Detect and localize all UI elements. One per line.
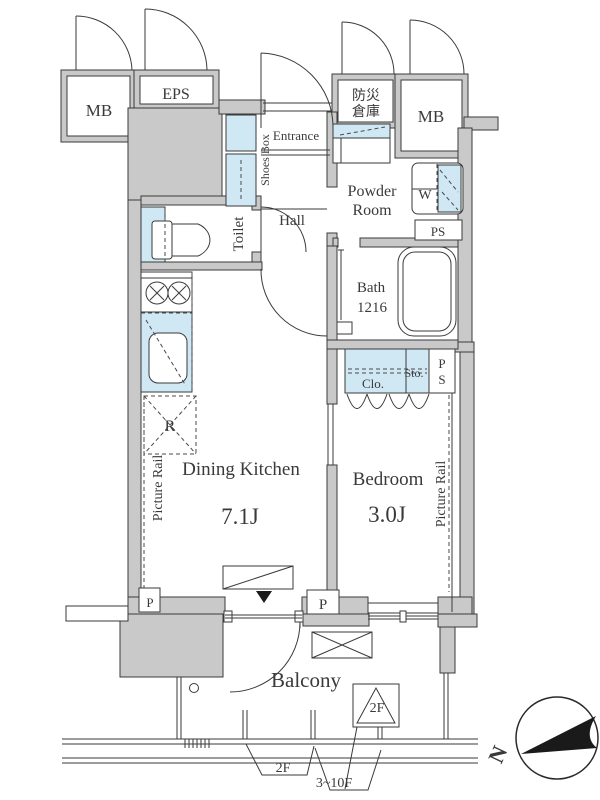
ps-side-label-line2: S: [438, 372, 445, 387]
balcony-and-windows: [62, 566, 478, 790]
kitchen-sink: [149, 333, 187, 383]
entrance-label: Entrance: [273, 128, 319, 143]
bath-counter: [337, 322, 352, 334]
floor-marker-label: 2F: [370, 701, 385, 716]
picture-rail-right-label: Picture Rail: [434, 461, 449, 528]
compass: N: [483, 697, 598, 779]
entry-triangle-marker: [256, 591, 272, 603]
bousai-label-line2: 倉庫: [352, 103, 380, 120]
floor-plan-drawing: N MB EPS 防災 倉庫 MB Entrance Shoes Box Hal…: [0, 0, 600, 800]
bath-label-line1: Bath: [357, 280, 386, 296]
eps-label: EPS: [162, 86, 190, 103]
balcony-label: Balcony: [271, 668, 341, 692]
pipe-center-label: P: [319, 597, 327, 613]
mb-left-label: MB: [86, 101, 112, 120]
toilet-tank: [152, 221, 172, 259]
bedroom-size: 3.0J: [368, 502, 406, 527]
rail-2f-label: 2F: [276, 761, 291, 776]
ps-top-label: PS: [431, 224, 445, 239]
bousai-label-line1: 防災: [352, 88, 380, 104]
refrigerator-label: R: [165, 418, 176, 435]
ps-side-label-line1: P: [438, 356, 445, 371]
toilet-bowl: [172, 224, 210, 256]
powder-room-label-line1: Powder: [348, 183, 398, 200]
window-frame-left: [224, 611, 232, 622]
dining-kitchen-size: 7.1J: [221, 504, 259, 529]
washer-label: W: [418, 188, 432, 203]
powder-cabinet: [333, 138, 390, 163]
shoes-box-label: Shoes Box: [258, 134, 272, 186]
dining-kitchen-label: Dining Kitchen: [182, 459, 300, 480]
mb-right-label: MB: [418, 107, 444, 126]
drain-circle: [190, 684, 199, 693]
hall-label: Hall: [279, 213, 305, 229]
rail-3-10f-label: 3~10F: [316, 776, 353, 791]
floor-plan: N MB EPS 防災 倉庫 MB Entrance Shoes Box Hal…: [0, 0, 600, 800]
storage-label: Sto.: [404, 366, 423, 380]
shoes-box-upper: [226, 115, 256, 151]
picture-rail-left-label: Picture Rail: [151, 455, 166, 522]
bath-label-line2: 1216: [357, 300, 388, 316]
bedroom-label: Bedroom: [353, 469, 424, 490]
pipe-left-label: P: [146, 595, 153, 610]
compass-north-label: N: [483, 742, 512, 767]
closet-label: Clo.: [362, 376, 384, 391]
powder-room-label-line2: Room: [352, 202, 392, 219]
railing-hatch: [185, 739, 209, 748]
toilet-label: Toilet: [231, 216, 247, 252]
